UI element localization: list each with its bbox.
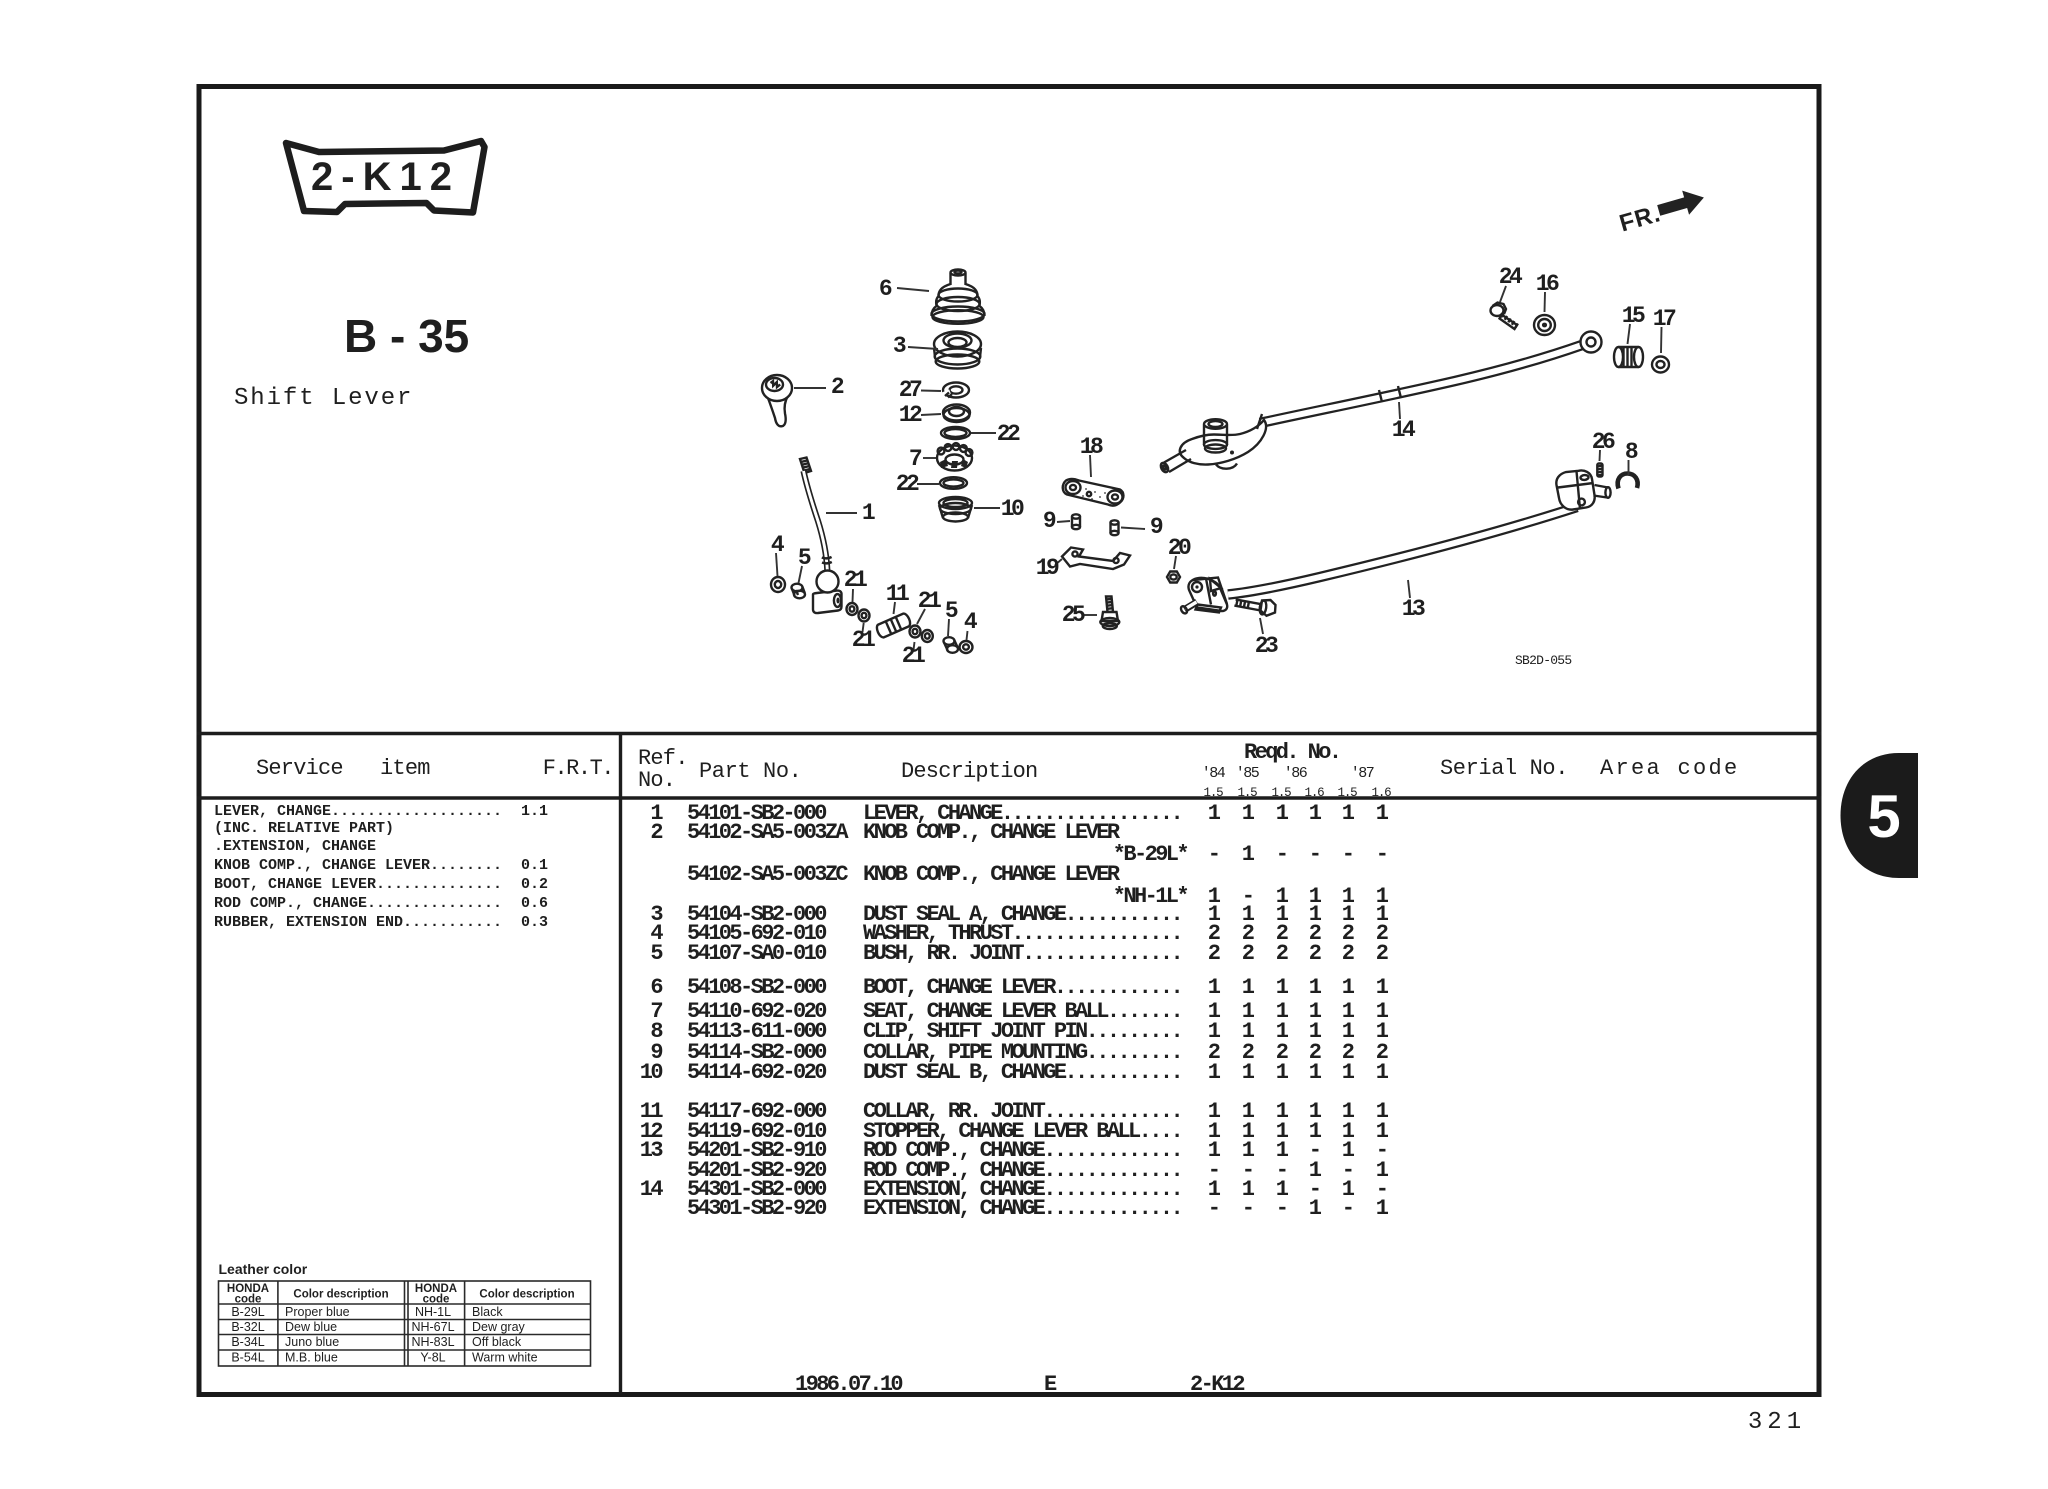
svg-text:10: 10 [1001, 496, 1024, 522]
svg-text:DUST SEAL B, CHANGE...........: DUST SEAL B, CHANGE........... [863, 1060, 1181, 1085]
svg-text:-: - [1342, 1196, 1353, 1221]
svg-text:SB2D-055: SB2D-055 [1515, 653, 1571, 668]
svg-text:2: 2 [1242, 941, 1254, 966]
svg-text:8: 8 [1625, 439, 1638, 465]
svg-text:B-29L: B-29L [231, 1305, 264, 1319]
svg-text:Y-8L: Y-8L [420, 1351, 445, 1365]
svg-text:NH-1L: NH-1L [415, 1305, 451, 1319]
svg-text:code: code [423, 1294, 450, 1306]
svg-text:1: 1 [1342, 975, 1355, 1000]
svg-text:4: 4 [771, 532, 785, 558]
svg-text:1.5: 1.5 [1238, 786, 1258, 800]
svg-text:1: 1 [862, 500, 875, 526]
svg-text:KNOB COMP., CHANGE LEVER: KNOB COMP., CHANGE LEVER [863, 820, 1121, 845]
svg-text:18: 18 [1080, 434, 1103, 460]
svg-text:13: 13 [1402, 596, 1425, 622]
svg-text:54102-SA5-003ZA: 54102-SA5-003ZA [687, 820, 849, 845]
svg-text:-: - [1208, 1196, 1219, 1221]
svg-text:26: 26 [1592, 429, 1615, 455]
svg-text:B-32L: B-32L [231, 1320, 264, 1334]
svg-text:ROD COMP., CHANGE.............: ROD COMP., CHANGE............... [214, 895, 502, 912]
svg-text:1.5: 1.5 [1204, 786, 1224, 800]
svg-text:1: 1 [1376, 1060, 1389, 1085]
svg-text:B - 35: B - 35 [344, 310, 469, 362]
svg-text:54301-SB2-920: 54301-SB2-920 [687, 1196, 826, 1221]
svg-text:1: 1 [1276, 1060, 1289, 1085]
svg-text:-: - [1309, 842, 1320, 867]
svg-text:-: - [1242, 1196, 1253, 1221]
svg-text:Black: Black [472, 1305, 503, 1319]
svg-text:22: 22 [997, 421, 1020, 447]
svg-text:1.5: 1.5 [1338, 786, 1358, 800]
svg-text:1: 1 [1309, 801, 1322, 826]
svg-text:24: 24 [1499, 264, 1523, 290]
svg-text:1986.07.10: 1986.07.10 [795, 1372, 902, 1397]
svg-text:1.1: 1.1 [521, 803, 548, 820]
svg-text:Color description: Color description [479, 1289, 574, 1301]
svg-text:2: 2 [1309, 941, 1321, 966]
svg-text:LEVER, CHANGE.................: LEVER, CHANGE................... [214, 803, 502, 820]
svg-text:7: 7 [909, 446, 922, 472]
svg-text:BOOT, CHANGE LEVER............: BOOT, CHANGE LEVER............ [863, 975, 1181, 1000]
svg-text:0.6: 0.6 [521, 895, 548, 912]
svg-text:Warm white: Warm white [472, 1351, 538, 1365]
svg-text:27: 27 [899, 377, 922, 403]
svg-text:0.3: 0.3 [521, 914, 548, 931]
svg-text:1: 1 [1276, 975, 1289, 1000]
svg-text:13: 13 [640, 1138, 664, 1163]
svg-text:14: 14 [640, 1177, 664, 1202]
svg-text:-: - [1376, 842, 1387, 867]
svg-text:1: 1 [1309, 1196, 1322, 1221]
svg-text:Part No.: Part No. [699, 759, 801, 784]
svg-text:5: 5 [945, 598, 958, 624]
svg-text:NH-83L: NH-83L [411, 1335, 454, 1349]
svg-text:25: 25 [1062, 602, 1085, 628]
svg-text:1: 1 [1309, 975, 1322, 1000]
svg-text:Serial No.: Serial No. [1440, 756, 1568, 781]
svg-text:NH-67L: NH-67L [411, 1320, 454, 1334]
svg-text:5: 5 [650, 941, 663, 966]
svg-text:9: 9 [1043, 508, 1056, 534]
svg-text:KNOB COMP., CHANGE LEVER......: KNOB COMP., CHANGE LEVER........ [214, 857, 502, 874]
svg-text:FR.: FR. [1616, 200, 1663, 237]
svg-text:Reqd. No.: Reqd. No. [1244, 740, 1339, 765]
svg-text:1: 1 [1376, 801, 1389, 826]
svg-text:21: 21 [852, 627, 875, 653]
svg-text:M.B. blue: M.B. blue [285, 1351, 338, 1365]
svg-text:'85: '85 [1236, 765, 1260, 782]
svg-text:1: 1 [1242, 801, 1255, 826]
svg-text:Dew gray: Dew gray [472, 1320, 526, 1334]
svg-text:1: 1 [1376, 1196, 1389, 1221]
svg-text:54114-692-020: 54114-692-020 [687, 1060, 826, 1085]
svg-text:1: 1 [1376, 975, 1389, 1000]
svg-text:54102-SA5-003ZC: 54102-SA5-003ZC [687, 862, 848, 887]
svg-text:1.6: 1.6 [1305, 786, 1325, 800]
svg-text:1: 1 [1276, 801, 1289, 826]
svg-text:'86: '86 [1284, 765, 1308, 782]
svg-text:16: 16 [1536, 271, 1559, 297]
svg-text:BUSH, RR. JOINT...............: BUSH, RR. JOINT............... [863, 941, 1181, 966]
svg-text:2: 2 [1276, 941, 1288, 966]
svg-text:1: 1 [1242, 1060, 1255, 1085]
svg-text:EXTENSION, CHANGE.............: EXTENSION, CHANGE............. [863, 1196, 1181, 1221]
svg-text:*B-29L*: *B-29L* [1113, 842, 1188, 867]
svg-text:5: 5 [1867, 783, 1900, 850]
svg-text:9: 9 [1150, 514, 1163, 540]
svg-text:54107-SA0-010: 54107-SA0-010 [687, 941, 826, 966]
svg-text:Dew blue: Dew blue [285, 1320, 337, 1334]
svg-text:Description: Description [901, 759, 1037, 784]
svg-text:-: - [1276, 842, 1287, 867]
svg-text:0.1: 0.1 [521, 857, 548, 874]
svg-text:KNOB COMP., CHANGE LEVER: KNOB COMP., CHANGE LEVER [863, 862, 1121, 887]
svg-text:'87: '87 [1351, 765, 1374, 782]
svg-text:No.: No. [638, 768, 675, 793]
svg-text:6: 6 [650, 975, 662, 1000]
svg-text:17: 17 [1653, 306, 1676, 332]
svg-text:code: code [235, 1294, 262, 1306]
svg-text:Shift Lever: Shift Lever [234, 385, 413, 412]
svg-text:2: 2 [831, 374, 844, 400]
svg-text:2: 2 [1208, 941, 1220, 966]
svg-text:B-34L: B-34L [231, 1335, 264, 1349]
svg-text:1: 1 [1309, 1060, 1322, 1085]
svg-text:1: 1 [1342, 1060, 1355, 1085]
svg-text:Leather color: Leather color [219, 1261, 308, 1277]
svg-text:23: 23 [1255, 633, 1278, 659]
svg-text:F.R.T.: F.R.T. [543, 756, 613, 781]
svg-text:20: 20 [1168, 535, 1191, 561]
svg-text:11: 11 [886, 581, 909, 607]
svg-text:2-K12: 2-K12 [1190, 1372, 1244, 1397]
svg-text:Area code: Area code [1600, 756, 1740, 781]
svg-text:BOOT, CHANGE LEVER............: BOOT, CHANGE LEVER.............. [214, 876, 502, 893]
svg-text:-: - [1276, 1196, 1287, 1221]
svg-text:Off black: Off black [472, 1335, 522, 1349]
svg-text:B-54L: B-54L [231, 1351, 264, 1365]
svg-text:12: 12 [899, 402, 922, 428]
svg-text:4: 4 [964, 609, 978, 635]
svg-text:321: 321 [1748, 1409, 1806, 1436]
svg-text:Proper blue: Proper blue [285, 1305, 350, 1319]
svg-text:21: 21 [902, 643, 925, 669]
svg-text:2: 2 [1376, 941, 1388, 966]
svg-text:.EXTENSION, CHANGE: .EXTENSION, CHANGE [214, 838, 376, 855]
svg-text:21: 21 [918, 588, 941, 614]
svg-text:15: 15 [1622, 303, 1645, 329]
svg-text:1.5: 1.5 [1272, 786, 1292, 800]
svg-text:1: 1 [1208, 975, 1221, 1000]
svg-text:2-K12: 2-K12 [311, 155, 460, 199]
svg-text:1: 1 [1208, 801, 1221, 826]
svg-text:'84: '84 [1202, 765, 1226, 782]
svg-text:Color description: Color description [293, 1289, 388, 1301]
svg-text:22: 22 [896, 471, 919, 497]
svg-text:-: - [1208, 842, 1219, 867]
svg-text:1: 1 [1242, 842, 1255, 867]
svg-text:0.2: 0.2 [521, 876, 548, 893]
svg-text:RUBBER, EXTENSION END.........: RUBBER, EXTENSION END........... [214, 914, 502, 931]
svg-text:3: 3 [893, 333, 906, 359]
svg-text:21: 21 [844, 567, 867, 593]
svg-text:19: 19 [1036, 555, 1059, 581]
svg-text:10: 10 [640, 1060, 663, 1085]
svg-text:1.6: 1.6 [1372, 786, 1392, 800]
svg-text:1: 1 [1242, 975, 1255, 1000]
svg-text:2: 2 [1342, 941, 1354, 966]
svg-text:54108-SB2-000: 54108-SB2-000 [687, 975, 826, 1000]
svg-text:Juno blue: Juno blue [285, 1335, 339, 1349]
svg-text:-: - [1342, 842, 1353, 867]
svg-text:Service item: Service item [256, 756, 430, 781]
svg-text:14: 14 [1392, 417, 1416, 443]
svg-text:6: 6 [879, 276, 892, 302]
svg-text:5: 5 [798, 545, 811, 571]
svg-text:1: 1 [1208, 1060, 1221, 1085]
svg-text:(INC. RELATIVE PART): (INC. RELATIVE PART) [214, 820, 394, 837]
svg-text:2: 2 [650, 820, 662, 845]
svg-text:1: 1 [1342, 801, 1355, 826]
